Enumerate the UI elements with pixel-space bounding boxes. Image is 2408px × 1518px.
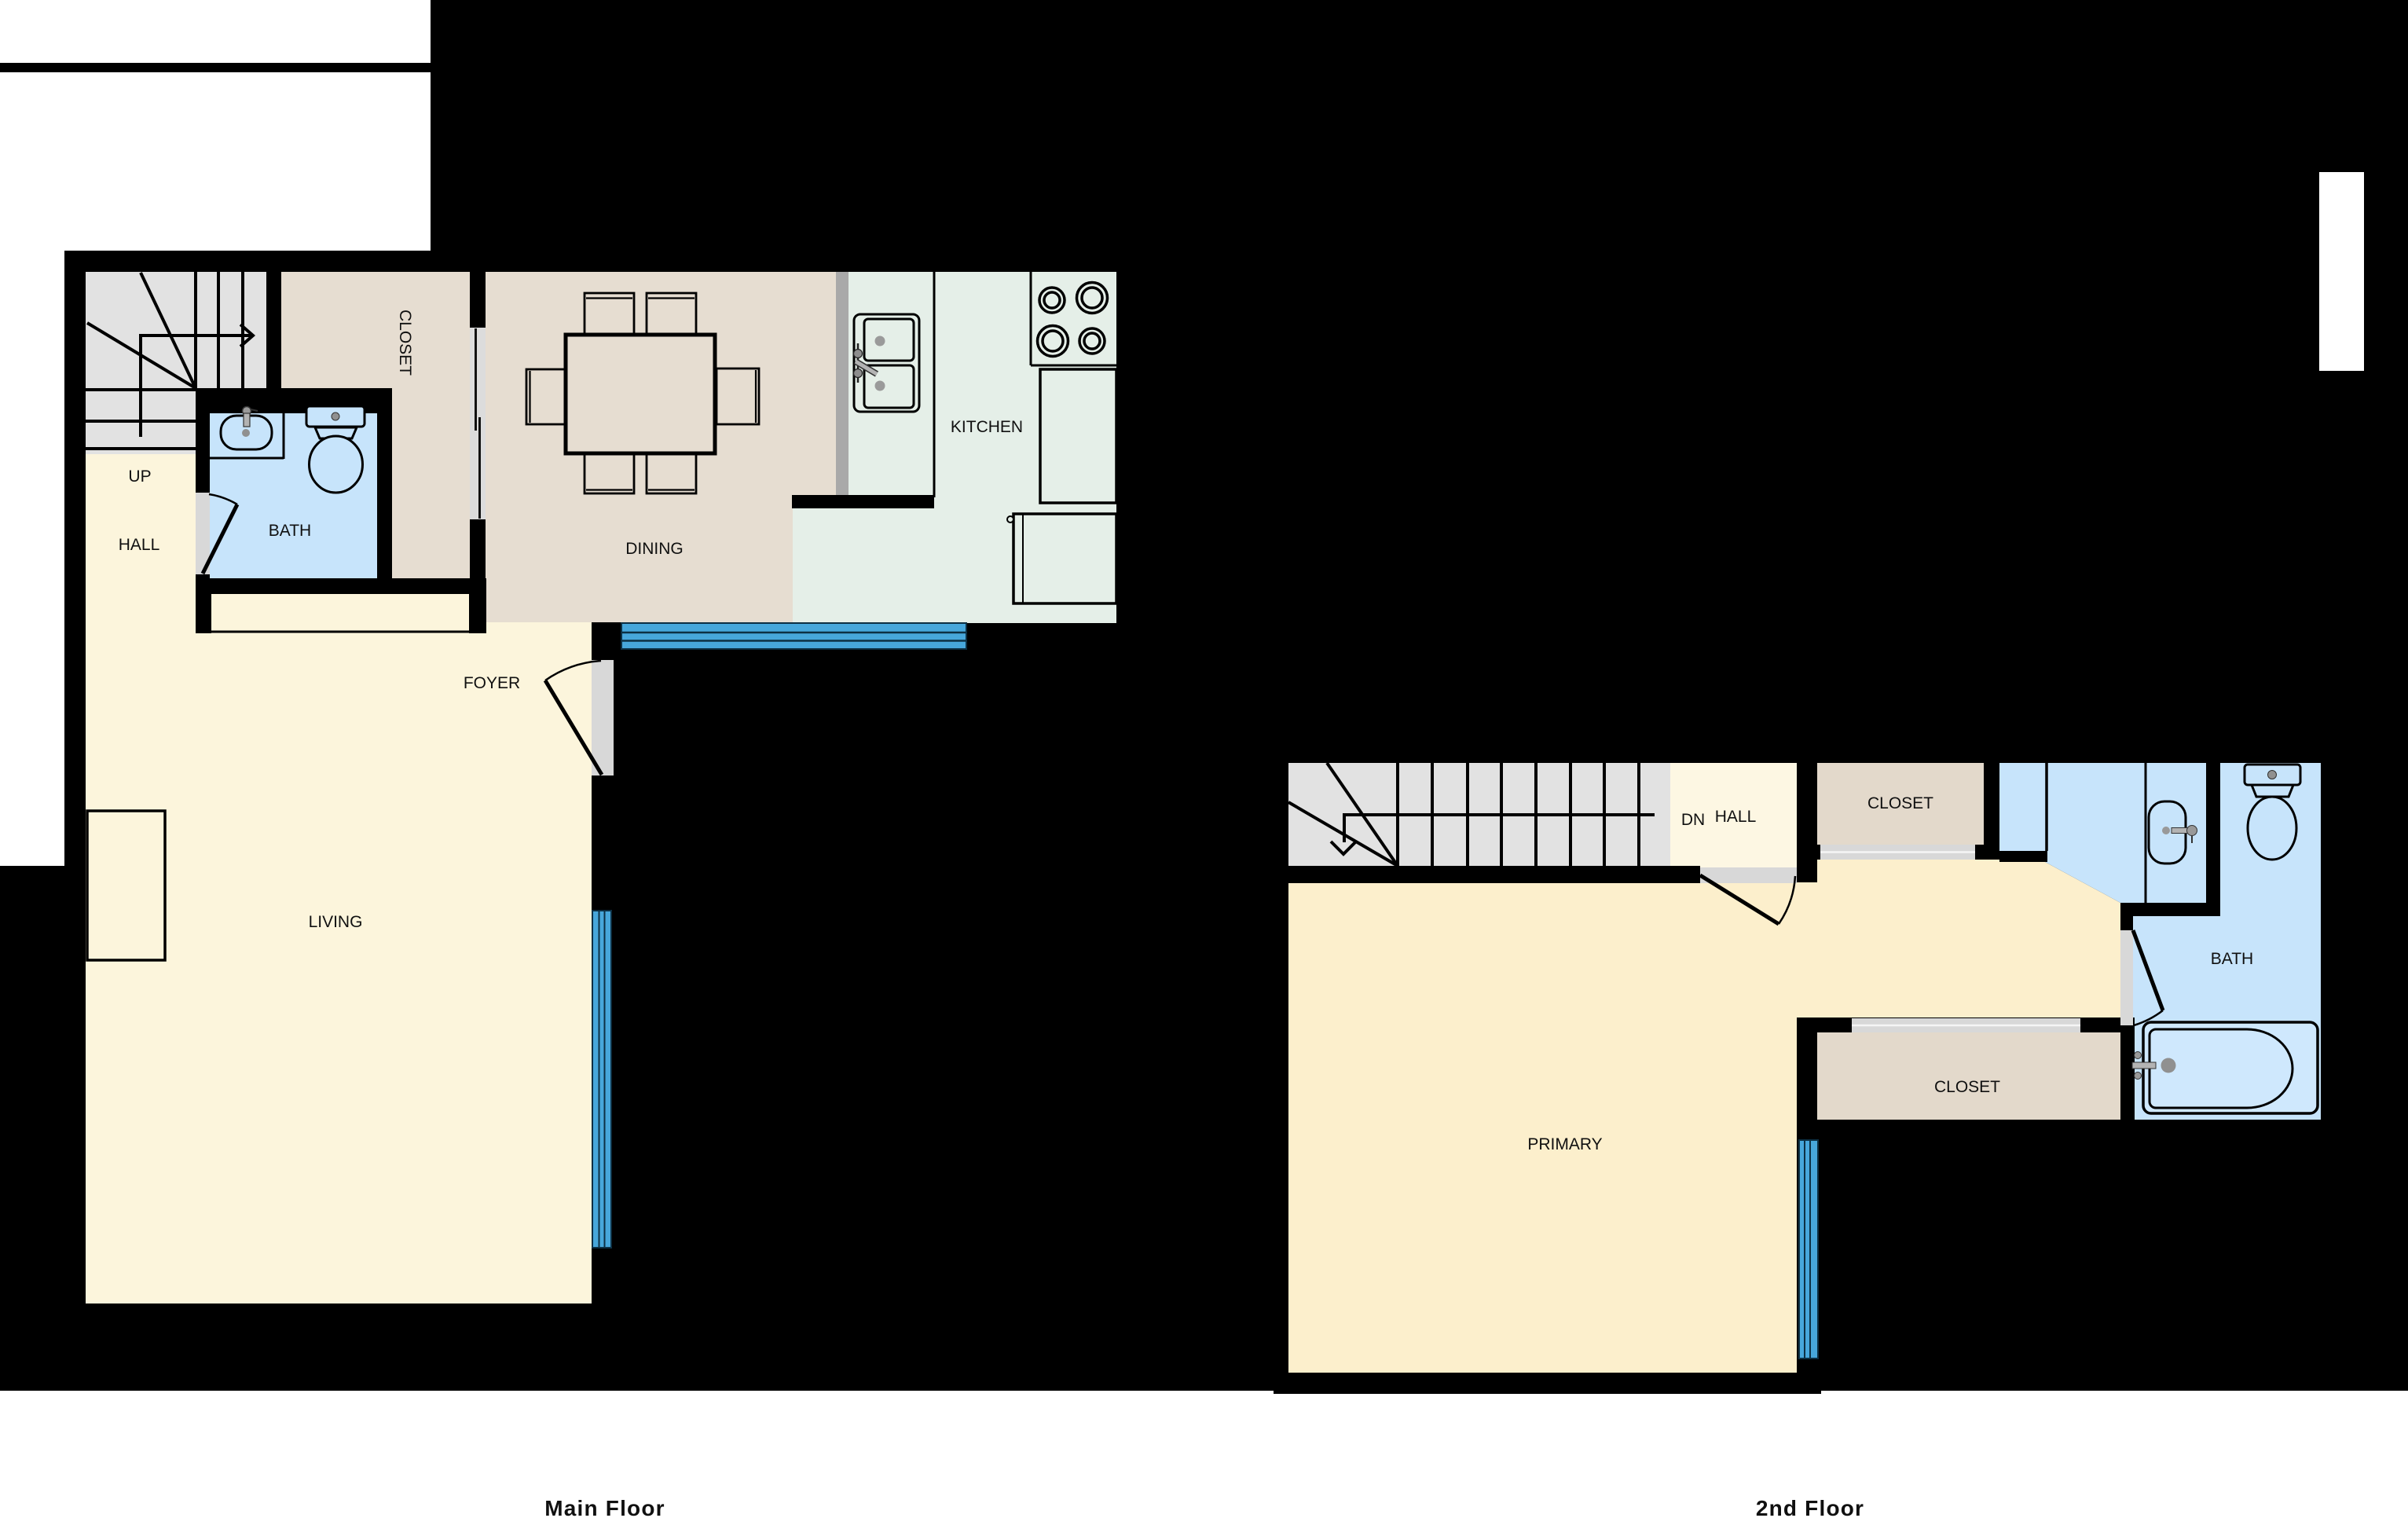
svg-text:CLOSET: CLOSET: [1934, 1078, 2000, 1096]
svg-text:LIVING: LIVING: [309, 913, 363, 931]
svg-text:CLOSET: CLOSET: [396, 310, 414, 376]
svg-text:PRIMARY: PRIMARY: [1527, 1135, 1602, 1153]
svg-text:HALL: HALL: [1715, 808, 1757, 826]
svg-text:DN: DN: [1681, 811, 1705, 829]
svg-text:DINING: DINING: [625, 540, 684, 558]
svg-text:BATH: BATH: [269, 522, 311, 540]
svg-text:HALL: HALL: [119, 536, 160, 554]
svg-text:CLOSET: CLOSET: [1867, 794, 1933, 812]
svg-text:FOYER: FOYER: [464, 674, 520, 692]
svg-text:BATH: BATH: [2211, 950, 2253, 968]
svg-text:Main Floor: Main Floor: [544, 1496, 665, 1518]
svg-text:2nd Floor: 2nd Floor: [1756, 1496, 1864, 1518]
svg-text:KITCHEN: KITCHEN: [951, 418, 1023, 436]
svg-text:UP: UP: [128, 467, 151, 486]
